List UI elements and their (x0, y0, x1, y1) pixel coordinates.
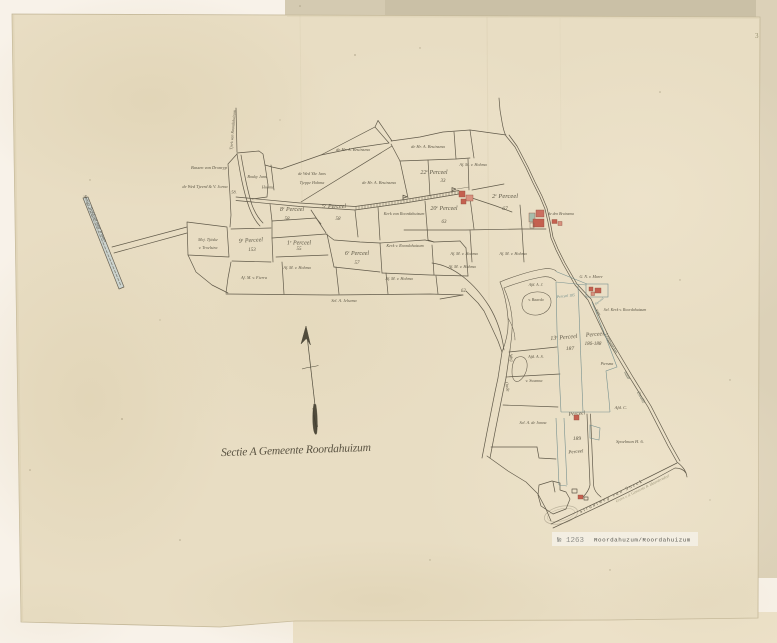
svg-text:Afd. C.: Afd. C. (614, 405, 628, 410)
svg-text:Tjeppe Hobma: Tjeppe Hobma (300, 180, 325, 185)
svg-text:Kerk v. Roordahuizum: Kerk v. Roordahuizum (385, 243, 423, 248)
svg-text:Af. M. v. Hobma: Af. M. v. Hobma (458, 162, 486, 167)
svg-text:3: 3 (755, 32, 759, 40)
svg-text:Piersma: Piersma (600, 362, 614, 366)
svg-text:Kerk van Roordahuizum: Kerk van Roordahuizum (383, 211, 425, 216)
svg-text:187: 187 (566, 346, 575, 352)
svg-text:20e Perceel: 20e Perceel (430, 205, 457, 212)
svg-text:Bouky Jans: Bouky Jans (247, 174, 267, 179)
svg-text:v. Baarda: v. Baarda (528, 297, 543, 302)
svg-text:6e Perceel: 6e Perceel (345, 250, 369, 257)
svg-text:58: 58 (285, 217, 291, 222)
svg-text:Af. M. v. Hobma: Af. M. v. Hobma (498, 251, 526, 256)
svg-text:de Wed Tjeerd & V. Jorna: de Wed Tjeerd & V. Jorna (182, 184, 228, 189)
svg-text:Af. M. v. Fierra: Af. M. v. Fierra (240, 275, 267, 280)
svg-text:Roordahuzum/Roordahuizum: Roordahuzum/Roordahuizum (594, 537, 691, 544)
svg-text:58: 58 (336, 217, 342, 222)
svg-text:Af. M. v. Hobma: Af. M. v. Hobma (449, 251, 477, 256)
svg-text:v. Troelstra: v. Troelstra (199, 245, 218, 250)
svg-text:63: 63 (442, 220, 448, 225)
svg-text:de Hr. A. Bruinsma: de Hr. A. Bruinsma (411, 144, 446, 149)
svg-text:5e Perceel: 5e Perceel (322, 203, 346, 210)
svg-text:de den Bruinsma: de den Bruinsma (548, 212, 574, 216)
svg-text:55: 55 (297, 247, 303, 252)
svg-text:33: 33 (441, 179, 447, 184)
svg-text:de Hr. A. Bruinsma: de Hr. A. Bruinsma (362, 180, 397, 185)
svg-text:G. N. v. Marre: G. N. v. Marre (579, 274, 602, 279)
svg-text:Af. M. v. Hobma: Af. M. v. Hobma (384, 276, 412, 281)
svg-text:de Hr. A. Bruinsma: de Hr. A. Bruinsma (336, 147, 371, 152)
svg-text:189: 189 (573, 436, 582, 442)
svg-text:8e Perceel: 8e Perceel (280, 206, 304, 213)
svg-text:Af. M. v. Hobma: Af. M. v. Hobma (447, 264, 475, 269)
svg-text:57: 57 (355, 261, 361, 266)
svg-text:№ 1263: № 1263 (557, 537, 585, 545)
svg-text:2e Perceel: 2e Perceel (492, 193, 518, 200)
svg-text:22e Perceel: 22e Perceel (420, 169, 447, 176)
svg-text:186-188: 186-188 (585, 342, 602, 347)
svg-text:Afd. A. S.: Afd. A. S. (527, 354, 544, 359)
svg-text:Sel. A. de Jonna: Sel. A. de Jonna (519, 420, 546, 425)
svg-text:Spoelman H. 6.: Spoelman H. 6. (616, 439, 644, 444)
svg-text:58.: 58. (231, 190, 236, 195)
svg-text:Sel. A. Jelsema: Sel. A. Jelsema (331, 298, 356, 303)
svg-text:1e Perceel: 1e Perceel (287, 240, 311, 247)
svg-text:Mej. Tjitske: Mej. Tjitske (197, 237, 218, 242)
svg-text:153: 153 (248, 248, 256, 253)
svg-text:Af. M. v. Hobma: Af. M. v. Hobma (282, 265, 310, 270)
svg-text:Afd. A. J.: Afd. A. J. (528, 282, 544, 287)
svg-text:v. Swanna: v. Swanna (526, 378, 543, 383)
svg-text:de Wed Yke Jans: de Wed Yke Jans (298, 171, 326, 176)
svg-text:67: 67 (502, 206, 508, 212)
svg-text:62.: 62. (461, 289, 467, 294)
svg-text:Bassen van Dronryp: Bassen van Dronryp (191, 165, 228, 170)
svg-text:Hobma: Hobma (261, 185, 274, 190)
svg-text:Sel. Kerk v. Roordahuizum: Sel. Kerk v. Roordahuizum (604, 307, 647, 312)
